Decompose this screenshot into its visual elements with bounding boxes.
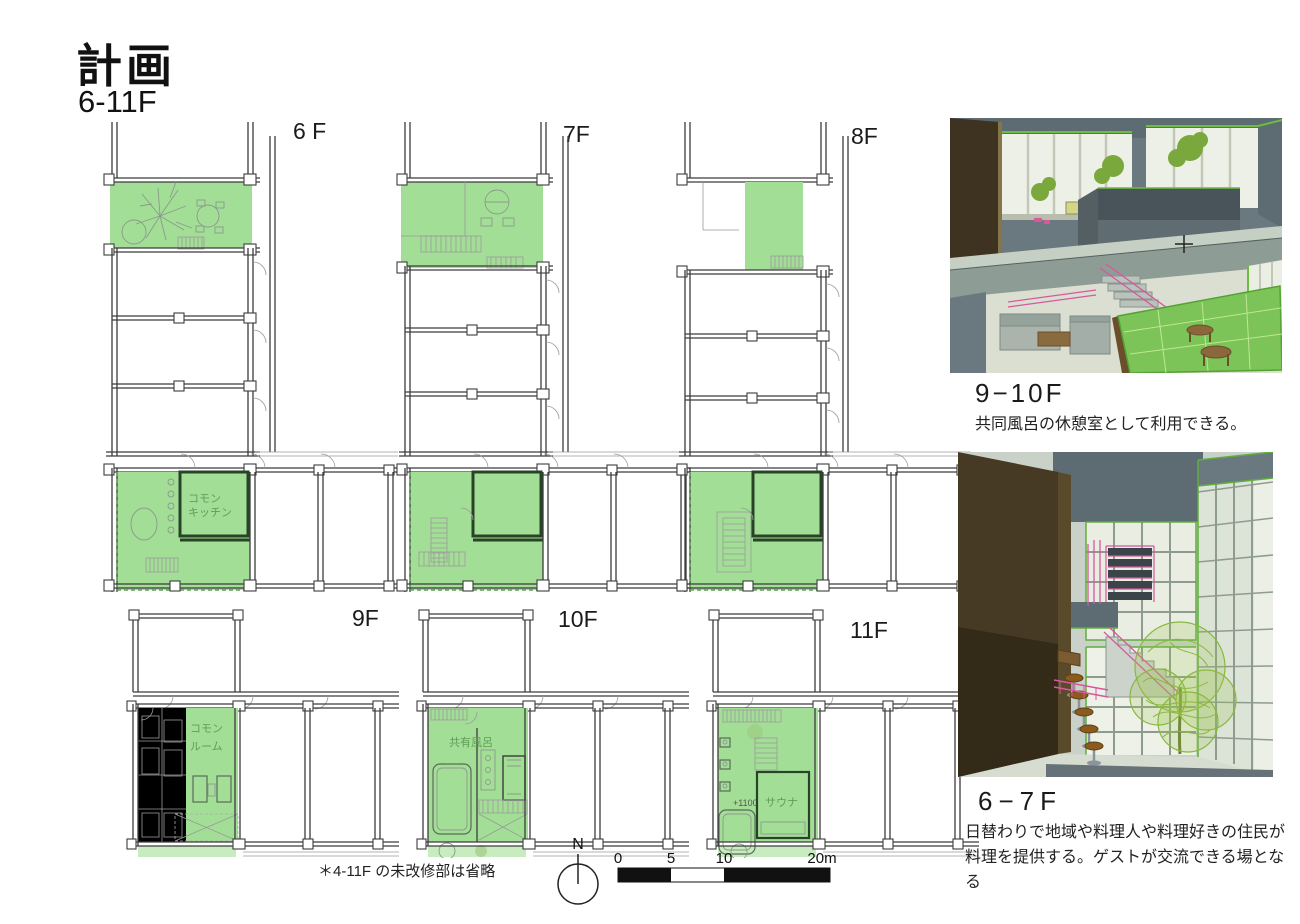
floor-plan-7f	[393, 120, 693, 598]
north-label: N	[572, 836, 584, 853]
floor-plan-11f: +1100 サウナ	[693, 608, 983, 858]
room-label-sauna: サウナ	[765, 796, 798, 809]
room-label-common-kitchen-line2: キッチン	[188, 506, 232, 519]
room-label-common-kitchen-line1: コモン	[188, 493, 221, 505]
floor-plan-6f: コモン キッチン	[100, 120, 400, 598]
floor-plan-9f: コモン ルーム	[113, 608, 403, 858]
render-description-6-7f-line2: 料理を提供する。ゲストが交流できる場となる	[965, 845, 1300, 895]
scale-tick-5: 5	[667, 850, 675, 867]
room-label-common-room-line2: ルーム	[190, 740, 223, 753]
floor-plan-10f: 共有風呂	[403, 608, 693, 858]
sofas	[1000, 314, 1110, 354]
level-note: +1100	[733, 798, 758, 808]
presentation-sheet: 計画 6-11F 6 F 7F 8F 9F 10F 11F	[0, 0, 1300, 924]
scale-bar: 0 5 10 20m	[612, 848, 852, 892]
render-caption-6-7f: 6−7F	[978, 786, 1062, 817]
scale-tick-0: 0	[614, 850, 622, 867]
plant	[475, 845, 487, 857]
render-6-7f-image	[958, 452, 1273, 777]
floor-plan-8f	[673, 120, 973, 598]
render-description-6-7f-line1: 日替わりで地域や料理人や料理好きの住民が	[965, 820, 1300, 845]
page-subtitle: 6-11F	[78, 84, 157, 120]
room-label-common-room-line1: コモン	[190, 723, 223, 735]
wood-wall	[958, 452, 1071, 777]
footnote: ＊4-11F の未改修部は省略	[318, 860, 495, 881]
wood-panel	[950, 118, 1000, 270]
render-9-10f-image	[950, 118, 1282, 373]
north-arrow: N	[554, 834, 604, 908]
render-caption-9-10f: 9−10F	[975, 378, 1064, 409]
plant	[747, 724, 763, 740]
scale-tick-10: 10	[716, 850, 733, 867]
render-description-9-10f: 共同風呂の休憩室として利用できる。	[975, 412, 1246, 437]
room-label-shared-bath: 共有風呂	[449, 735, 493, 749]
scale-tick-20m: 20m	[807, 850, 836, 867]
